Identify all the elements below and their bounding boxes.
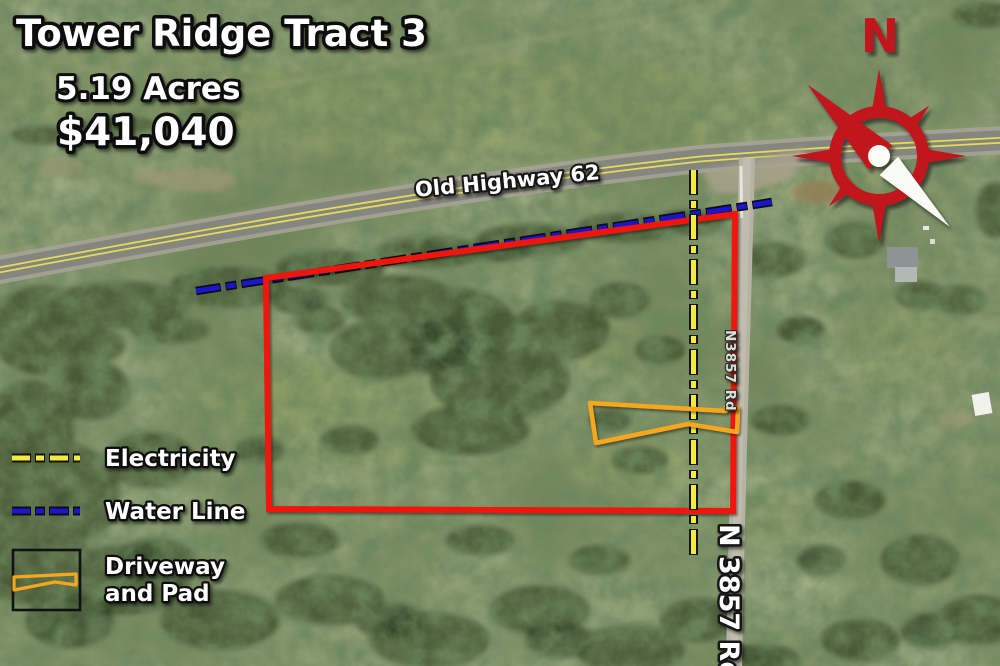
tract-title: Tower Ridge Tract 3 (16, 12, 427, 55)
legend-electricity-label: Electricity (105, 446, 236, 472)
legend-water-label: Water Line (105, 499, 246, 525)
compass-north-label: N (861, 9, 900, 63)
tract-price: $41,040 (57, 110, 235, 155)
legend-driveway-label-line2: and Pad (105, 581, 210, 607)
legend-driveway-label-line1: Driveway (105, 554, 225, 580)
road-label-small: N3857 Rd (722, 330, 738, 412)
map-canvas: Old Highway 62 N3857 Rd N 3857 Rd Tower … (0, 0, 1000, 666)
road-label-large: N 3857 Rd (713, 524, 744, 666)
compass-center-dot (868, 145, 890, 167)
property-flyer-map: Old Highway 62 N3857 Rd N 3857 Rd Tower … (0, 0, 1000, 666)
white-shed (971, 392, 993, 417)
tract-acreage: 5.19 Acres (56, 71, 240, 107)
